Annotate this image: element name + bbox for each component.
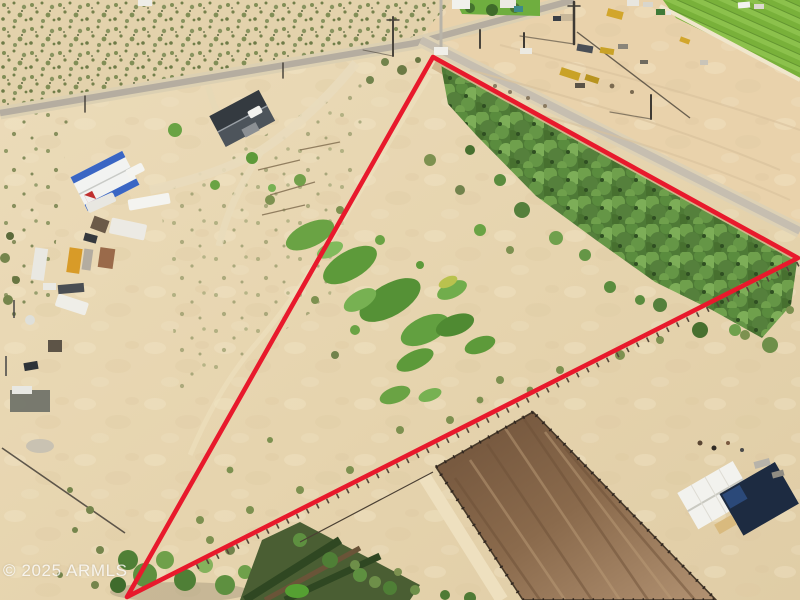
aerial-photo: © 2025 ARMLS: [0, 0, 800, 600]
roadside-homes-north: [452, 0, 540, 16]
watermark: © 2025 ARMLS: [3, 561, 128, 581]
aerial-photo-canvas: [0, 0, 800, 600]
